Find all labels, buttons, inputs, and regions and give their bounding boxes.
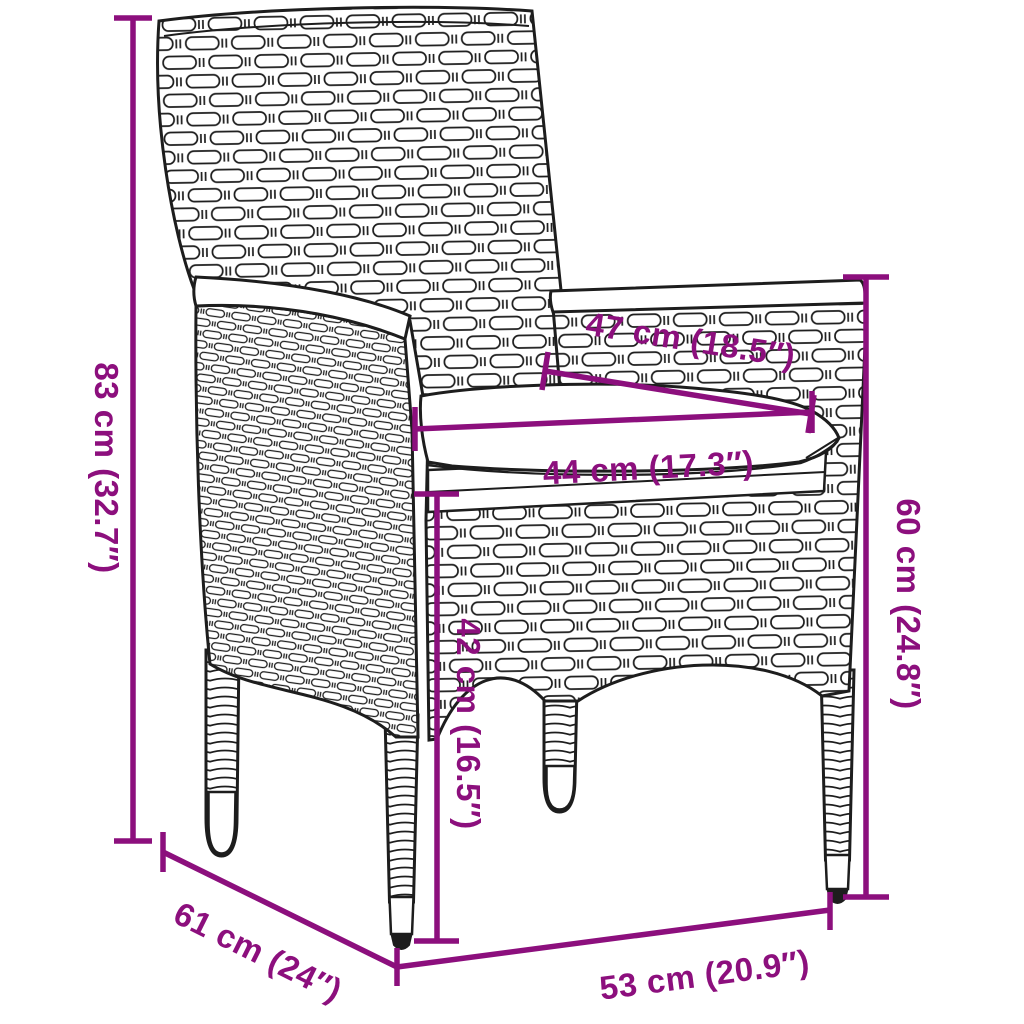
chair-leg-rear-left (206, 650, 239, 856)
dimension-label-depth: 61 cm (24″) (168, 894, 348, 1009)
chair-left-panel (196, 305, 418, 737)
chair-leg-rear-right (544, 686, 577, 812)
dimension-label-seat-height: 42 cm (16.5″) (450, 618, 487, 829)
dimension-label-width: 53 cm (20.9″) (597, 942, 811, 1006)
dimension-label-back-height: 83 cm (32.7″) (88, 362, 125, 573)
dimension-diagram-page: 83 cm (32.7″) 47 cm (18.5″) 44 cm (17.3″… (0, 0, 1024, 1024)
chair-leg-front-right (821, 670, 854, 903)
chair-artwork (158, 7, 867, 949)
dimension-back-height: 83 cm (32.7″) (88, 18, 152, 841)
dimension-label-armrest-height: 60 cm (24.8″) (890, 498, 927, 709)
chair-dimension-diagram: 83 cm (32.7″) 47 cm (18.5″) 44 cm (17.3″… (0, 0, 1024, 1024)
chair-leg-front-left (385, 715, 418, 949)
chair-foot-front-left (392, 934, 412, 949)
dimension-depth: 61 cm (24″) (163, 832, 397, 1009)
dimension-width: 53 cm (20.9″) (397, 892, 830, 1007)
